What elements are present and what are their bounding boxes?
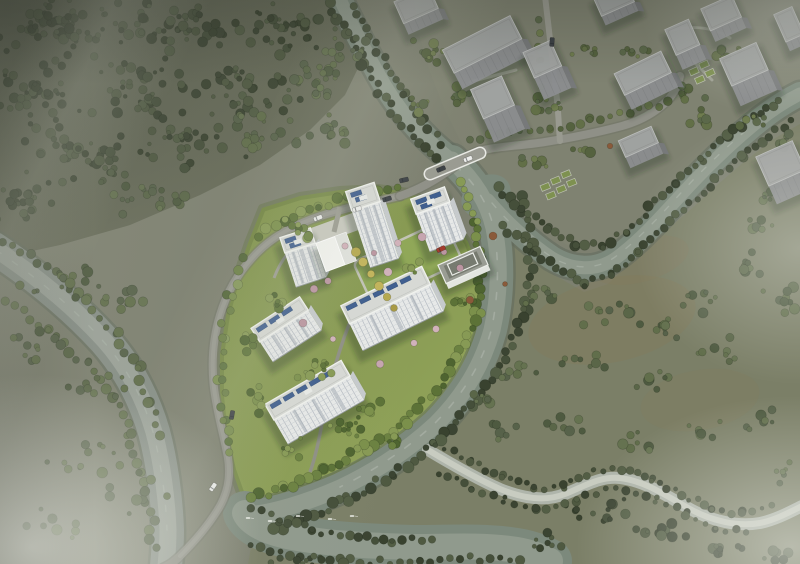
tree bbox=[771, 126, 778, 133]
tree bbox=[305, 205, 313, 213]
tree bbox=[744, 147, 751, 154]
tree bbox=[432, 153, 442, 163]
tree bbox=[234, 265, 244, 275]
tree bbox=[28, 121, 33, 126]
tree bbox=[591, 358, 601, 368]
tree bbox=[556, 412, 565, 421]
tree bbox=[72, 520, 80, 528]
tree bbox=[455, 476, 459, 480]
boat-hull bbox=[350, 515, 354, 517]
tree bbox=[17, 25, 25, 33]
tree bbox=[433, 443, 438, 448]
tree bbox=[289, 74, 299, 84]
tree bbox=[84, 448, 92, 456]
tree bbox=[643, 213, 649, 219]
tree bbox=[753, 118, 761, 126]
tree bbox=[285, 445, 291, 451]
tree bbox=[351, 48, 356, 53]
tree bbox=[53, 142, 60, 149]
tree bbox=[277, 555, 284, 562]
tree bbox=[431, 51, 436, 56]
tree bbox=[221, 349, 227, 355]
tree bbox=[646, 447, 653, 454]
tree bbox=[177, 153, 184, 160]
tree bbox=[579, 428, 586, 435]
tree bbox=[103, 12, 108, 17]
tree bbox=[666, 186, 673, 193]
tree bbox=[575, 474, 583, 482]
tree bbox=[85, 359, 92, 366]
tree bbox=[247, 504, 255, 512]
tree bbox=[52, 525, 63, 536]
tree bbox=[466, 400, 474, 408]
tree bbox=[101, 27, 105, 31]
tree bbox=[325, 0, 336, 8]
tree bbox=[355, 434, 359, 438]
tree bbox=[489, 232, 497, 240]
tree bbox=[394, 184, 401, 191]
tree bbox=[46, 180, 51, 185]
tree bbox=[157, 206, 163, 212]
tree bbox=[418, 537, 426, 545]
tree bbox=[478, 490, 486, 498]
tree bbox=[636, 321, 643, 328]
tree bbox=[148, 127, 156, 135]
tree bbox=[503, 229, 512, 238]
tree bbox=[125, 440, 134, 449]
tree bbox=[553, 293, 558, 298]
tree bbox=[428, 536, 436, 544]
tree bbox=[114, 0, 122, 7]
tree bbox=[59, 178, 67, 186]
tree bbox=[732, 158, 738, 164]
tree bbox=[768, 546, 779, 557]
boat-hull bbox=[296, 515, 300, 517]
tree bbox=[598, 309, 603, 314]
tree bbox=[572, 242, 579, 249]
tree bbox=[99, 70, 103, 74]
tree bbox=[327, 131, 335, 139]
tree bbox=[101, 384, 111, 394]
tree bbox=[636, 55, 640, 59]
tree bbox=[474, 225, 482, 233]
tree bbox=[166, 16, 176, 26]
tree bbox=[271, 485, 279, 493]
tree bbox=[466, 136, 473, 143]
tree bbox=[60, 285, 64, 289]
tree bbox=[763, 195, 767, 199]
tree bbox=[682, 532, 690, 540]
tree bbox=[549, 543, 554, 548]
tree bbox=[365, 406, 375, 416]
tree bbox=[120, 80, 125, 85]
tree bbox=[570, 52, 574, 56]
tree bbox=[671, 210, 679, 218]
tree bbox=[607, 143, 613, 149]
tree bbox=[635, 249, 641, 255]
tree bbox=[198, 37, 208, 47]
tree bbox=[276, 299, 281, 304]
tree bbox=[658, 191, 667, 200]
tree bbox=[574, 496, 580, 502]
tree bbox=[606, 307, 614, 315]
tree bbox=[694, 517, 698, 521]
tree bbox=[70, 175, 77, 182]
tree bbox=[610, 465, 616, 471]
tree bbox=[300, 18, 310, 28]
tree bbox=[571, 355, 578, 362]
tree bbox=[33, 82, 37, 86]
tree bbox=[630, 48, 635, 53]
tree bbox=[644, 373, 654, 383]
tree bbox=[529, 299, 534, 304]
tree bbox=[653, 500, 658, 505]
tree bbox=[178, 133, 183, 138]
tree bbox=[780, 297, 789, 306]
tree bbox=[60, 92, 65, 97]
tree bbox=[283, 519, 292, 528]
tree bbox=[523, 281, 531, 289]
tree bbox=[777, 480, 783, 486]
tree bbox=[41, 31, 48, 38]
tree bbox=[770, 420, 774, 424]
tree bbox=[702, 114, 711, 123]
tree bbox=[523, 301, 529, 307]
tree bbox=[512, 318, 522, 328]
tree bbox=[521, 363, 527, 369]
tree bbox=[762, 417, 769, 424]
tree bbox=[107, 169, 114, 176]
tree bbox=[523, 255, 532, 264]
tree bbox=[163, 135, 167, 139]
tree bbox=[774, 469, 779, 474]
tree bbox=[395, 240, 402, 247]
tree bbox=[372, 48, 381, 57]
tree bbox=[266, 294, 274, 302]
tree bbox=[295, 230, 301, 236]
tree bbox=[65, 384, 72, 391]
tree bbox=[293, 556, 301, 564]
tree bbox=[415, 258, 423, 266]
tree bbox=[232, 19, 240, 27]
tree bbox=[257, 112, 267, 122]
tree bbox=[367, 66, 374, 73]
tree bbox=[476, 558, 483, 564]
tree bbox=[233, 66, 238, 71]
tree bbox=[379, 535, 388, 544]
tree bbox=[290, 21, 296, 27]
tree bbox=[75, 146, 81, 152]
tree bbox=[442, 447, 446, 451]
tree bbox=[356, 406, 361, 411]
tree bbox=[601, 319, 608, 326]
tree bbox=[70, 32, 79, 41]
tree bbox=[617, 466, 626, 475]
tree bbox=[533, 285, 539, 291]
tree bbox=[551, 228, 560, 237]
tree bbox=[120, 349, 129, 358]
tree bbox=[603, 486, 608, 491]
tree bbox=[9, 242, 16, 249]
tree bbox=[499, 221, 507, 229]
tree bbox=[161, 29, 166, 34]
tree bbox=[288, 222, 296, 230]
tree bbox=[381, 476, 392, 487]
tree bbox=[451, 447, 459, 455]
tree bbox=[268, 560, 274, 564]
tree bbox=[476, 461, 481, 466]
tree bbox=[756, 270, 764, 278]
tree bbox=[396, 559, 403, 564]
tree bbox=[195, 4, 202, 11]
tree bbox=[325, 278, 332, 285]
tree bbox=[1, 297, 10, 306]
tree bbox=[318, 373, 326, 381]
tree bbox=[44, 89, 51, 96]
tree bbox=[122, 182, 131, 191]
tree bbox=[152, 421, 159, 428]
tree bbox=[685, 199, 692, 206]
tree bbox=[636, 218, 642, 224]
tree bbox=[43, 262, 51, 270]
tree bbox=[705, 151, 711, 157]
tree bbox=[532, 544, 536, 548]
tree bbox=[33, 259, 42, 268]
tree bbox=[607, 517, 612, 522]
tree bbox=[254, 409, 263, 418]
tree bbox=[686, 119, 695, 128]
tree bbox=[266, 493, 273, 500]
tree bbox=[459, 456, 464, 461]
tree bbox=[282, 216, 289, 223]
tree bbox=[65, 278, 75, 288]
tree bbox=[153, 71, 157, 75]
tree bbox=[633, 526, 640, 533]
tree bbox=[536, 544, 544, 552]
tree bbox=[127, 285, 138, 296]
tree bbox=[240, 70, 245, 75]
tree bbox=[288, 44, 293, 49]
tree bbox=[153, 544, 161, 552]
tree bbox=[342, 427, 347, 432]
tree bbox=[291, 31, 296, 36]
tree bbox=[333, 27, 338, 32]
tree bbox=[561, 499, 569, 507]
tree bbox=[568, 478, 573, 483]
tree bbox=[515, 555, 525, 564]
tree bbox=[684, 167, 692, 175]
tree bbox=[0, 238, 7, 246]
tree bbox=[39, 507, 43, 511]
tree bbox=[218, 376, 226, 384]
aerial-rendering bbox=[0, 0, 800, 564]
tree bbox=[654, 495, 659, 500]
tree bbox=[7, 105, 13, 111]
tree bbox=[55, 123, 63, 131]
tree bbox=[627, 431, 635, 439]
tree bbox=[9, 71, 18, 80]
tree bbox=[558, 126, 564, 132]
tree bbox=[256, 383, 262, 389]
tree bbox=[649, 478, 654, 483]
tree bbox=[294, 374, 301, 381]
tree bbox=[67, 0, 72, 3]
tree bbox=[566, 234, 574, 242]
tree bbox=[513, 370, 522, 379]
tree bbox=[40, 523, 46, 529]
tree bbox=[106, 483, 114, 491]
tree bbox=[388, 100, 396, 108]
tree bbox=[461, 479, 469, 487]
tree bbox=[303, 35, 310, 42]
tree bbox=[332, 13, 337, 18]
tree bbox=[771, 556, 780, 564]
tree bbox=[621, 509, 631, 519]
tree bbox=[769, 502, 775, 508]
tree bbox=[314, 45, 319, 50]
tree bbox=[101, 444, 106, 449]
tree bbox=[318, 556, 326, 564]
tree bbox=[337, 532, 344, 539]
tree bbox=[98, 179, 104, 185]
tree bbox=[220, 417, 227, 424]
tree bbox=[292, 518, 302, 528]
tree bbox=[268, 78, 278, 88]
tree bbox=[456, 555, 464, 563]
tree bbox=[165, 46, 175, 56]
tree bbox=[204, 149, 209, 154]
tree bbox=[146, 508, 155, 517]
tree bbox=[246, 492, 256, 502]
tree bbox=[781, 309, 789, 317]
tree bbox=[387, 70, 394, 77]
tree bbox=[545, 107, 552, 114]
tree bbox=[288, 482, 299, 493]
tree bbox=[356, 415, 360, 419]
tree bbox=[383, 293, 391, 301]
tree bbox=[757, 216, 766, 225]
tree bbox=[21, 306, 29, 314]
tree bbox=[698, 106, 705, 113]
tree bbox=[258, 506, 266, 514]
tree bbox=[451, 96, 455, 100]
tree bbox=[635, 441, 640, 446]
tree bbox=[434, 131, 441, 138]
tree bbox=[279, 106, 288, 115]
tree bbox=[258, 12, 262, 16]
tree bbox=[499, 374, 505, 380]
tree bbox=[78, 10, 87, 19]
tree bbox=[224, 426, 234, 436]
tree bbox=[159, 114, 167, 122]
tree bbox=[335, 42, 344, 51]
tree bbox=[686, 498, 690, 502]
tree bbox=[271, 221, 281, 231]
tree bbox=[278, 549, 283, 554]
tree bbox=[332, 70, 340, 78]
tree bbox=[131, 495, 142, 506]
tree bbox=[789, 304, 800, 315]
tree bbox=[292, 139, 302, 149]
tree bbox=[646, 235, 654, 243]
tree bbox=[503, 282, 508, 287]
tree bbox=[760, 506, 764, 510]
tree bbox=[247, 388, 255, 396]
tree bbox=[62, 144, 67, 149]
tree bbox=[16, 281, 25, 290]
tree bbox=[361, 491, 367, 497]
tree bbox=[718, 419, 723, 424]
tree bbox=[676, 172, 685, 181]
tree bbox=[566, 122, 575, 131]
tree bbox=[639, 46, 647, 54]
tree bbox=[65, 13, 72, 20]
tree bbox=[557, 542, 565, 550]
tree bbox=[677, 491, 686, 500]
tree bbox=[11, 40, 20, 49]
tree bbox=[103, 325, 109, 331]
tree bbox=[513, 423, 520, 430]
tree bbox=[159, 80, 166, 87]
tree bbox=[728, 510, 736, 518]
tree bbox=[710, 343, 719, 352]
tree bbox=[419, 99, 428, 108]
tree bbox=[495, 437, 501, 443]
tree bbox=[325, 556, 334, 564]
tree bbox=[121, 60, 127, 66]
tree bbox=[114, 327, 124, 337]
tree bbox=[217, 319, 225, 327]
tree bbox=[301, 521, 308, 528]
tree bbox=[641, 473, 649, 481]
tree bbox=[70, 536, 74, 540]
tree bbox=[528, 264, 538, 274]
tree bbox=[411, 102, 416, 107]
tree bbox=[309, 527, 315, 533]
tree bbox=[695, 496, 701, 502]
tree bbox=[427, 56, 431, 60]
tree bbox=[23, 342, 31, 350]
tree bbox=[509, 342, 517, 350]
tree bbox=[584, 302, 593, 311]
tree bbox=[710, 143, 716, 149]
tree bbox=[167, 130, 171, 134]
tree bbox=[629, 223, 635, 229]
tree bbox=[304, 232, 313, 241]
tree bbox=[51, 136, 57, 142]
tree bbox=[464, 192, 473, 201]
tree bbox=[76, 386, 85, 395]
tree bbox=[616, 109, 623, 116]
tree bbox=[78, 463, 84, 469]
tree bbox=[714, 544, 719, 549]
tree bbox=[486, 554, 495, 563]
tree bbox=[303, 66, 310, 73]
tree bbox=[494, 181, 505, 192]
tree bbox=[663, 502, 668, 507]
tree bbox=[23, 353, 28, 358]
tree bbox=[153, 409, 159, 415]
tree bbox=[119, 411, 128, 420]
tree bbox=[338, 52, 342, 56]
tree bbox=[239, 253, 248, 262]
tree bbox=[244, 132, 250, 138]
tree bbox=[482, 468, 489, 475]
tree bbox=[125, 199, 129, 203]
tree bbox=[524, 480, 529, 485]
tree bbox=[335, 426, 342, 433]
tree bbox=[320, 70, 327, 77]
